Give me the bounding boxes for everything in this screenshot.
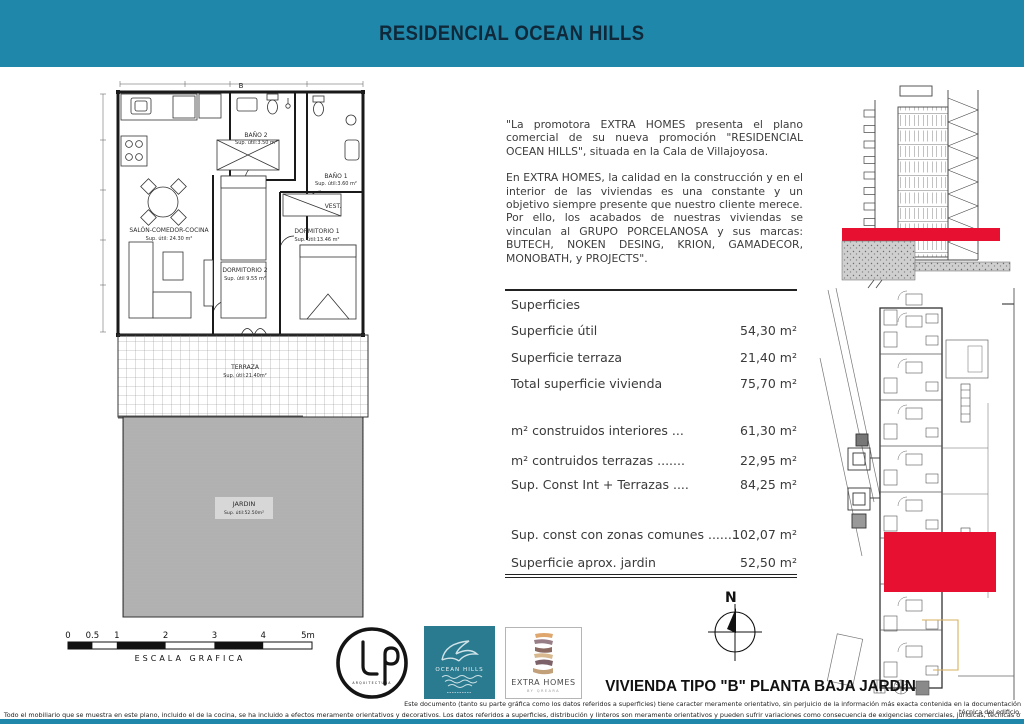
row-value: 54,30 m² [740,323,797,338]
page-title: RESIDENCIAL OCEAN HILLS [379,22,644,46]
extra-homes-name: EXTRA HOMES [511,678,575,687]
row-value: 22,95 m² [740,453,797,468]
row-label: Superficie útil [511,323,597,338]
section-break-mark [868,280,882,288]
row-value: 52,50 m² [740,555,797,570]
scale-tick: 1 [114,631,119,641]
surface-row: m² contruidos terrazas .......22,95 m² [511,453,797,468]
scale-tick: 5m [301,631,315,641]
row-label: Sup. const con zonas comunes ........ [511,527,740,542]
scale-label: ESCALA GRAFICA [135,654,246,663]
extra-homes-logo: EXTRA HOMES BY QREARA [505,627,582,699]
salon-label: SALÓN-COMEDOR-COCINA [129,227,209,234]
surface-row: Sup. const con zonas comunes ........102… [511,527,797,542]
extra-homes-subtext: BY QREARA [527,689,560,693]
jardin: JARDIN Sup. útil:52.50m² [118,417,363,617]
jardin-label: JARDIN [232,500,256,508]
plan-title: VIVIENDA TIPO "B" PLANTA BAJA JARDIN [605,678,881,696]
terraza-area: Sup. útil:21.40m² [223,372,266,379]
row-label: Superficie aprox. jardin [511,555,656,570]
north-label: N [725,590,737,606]
garden-outline [922,620,958,670]
block-label: B [239,82,244,90]
intro-text: "La promotora EXTRA HOMES presenta el pl… [506,118,803,265]
stairs [961,384,970,558]
row-label: Superficie terraza [511,350,622,365]
dorm1-label: DORMITORIO 1 [294,228,339,235]
scale-tick: 2 [163,631,168,641]
compass-needle-icon [727,608,736,633]
row-label: m² contruidos terrazas ....... [511,453,685,468]
surface-row: Sup. Const Int + Terrazas ....84,25 m² [511,477,797,492]
bano1-label: BAÑO 1 [324,173,347,180]
lp-arquitectura-logo: ARQUITECTURA [330,622,414,704]
salon-area: Sup. útil: 24.30 m² [146,235,193,242]
table-top-rule [505,289,797,291]
surface-row: Total superficie vivienda75,70 m² [511,376,797,391]
surface-row: Superficie terraza21,40 m² [511,350,797,365]
terraza: TERRAZA Sup. útil:21.40m² [118,335,368,417]
surface-row: m² construidos interiores ...61,30 m² [511,423,797,438]
bano1-area: Sup. útil:3.60 m² [315,180,357,187]
jardin-area: Sup. útil:52.50m² [224,509,264,516]
floor-plan-drawing: B [45,80,375,625]
ocean-hills-logo: OCEAN HILLS [424,626,495,699]
intro-paragraph-1: "La promotora EXTRA HOMES presenta el pl… [506,118,803,158]
vest-label: VEST. [325,203,342,210]
brochure-page: RESIDENCIAL OCEAN HILLS [0,0,1024,724]
row-value: 84,25 m² [740,477,797,492]
bano2-area: Sup. útil:3.50 m² [235,139,277,146]
dorm1-area: Sup. útil:13.46 m² [294,236,339,243]
row-label: Sup. Const Int + Terrazas .... [511,477,689,492]
site-plan-drawing [818,288,1018,700]
floor-plan-svg: B [45,80,375,625]
scale-bar: 0 0.5 1 2 3 4 5m ESCALA GRAFICA [42,628,320,668]
salon-kitchen-furniture [121,94,221,318]
row-value: 61,30 m² [740,423,797,438]
scale-tick: 3 [212,631,217,641]
ocean-hills-name: OCEAN HILLS [435,667,483,673]
scale-tick: 0 [65,631,70,641]
footer-bar [0,719,1024,724]
lp-monogram-icon [363,642,398,684]
surface-row: Superficie útil54,30 m² [511,323,797,338]
surface-row: Superficie aprox. jardin52,50 m² [511,555,797,570]
row-value: 102,07 m² [732,527,797,542]
elevator-cores [848,434,880,528]
lp-subtext: ARQUITECTURA [352,681,391,685]
compass-rose: N [703,588,767,662]
row-label: m² construidos interiores ... [511,423,684,438]
scale-tick: 0.5 [86,631,100,641]
highlighted-unit [884,532,996,592]
row-value: 75,70 m² [740,376,797,391]
roads [820,288,880,686]
highlighted-floor [842,228,1000,241]
header-bar: RESIDENCIAL OCEAN HILLS [0,0,1024,67]
surfaces-table: Superficies Superficie útil54,30 m² Supe… [505,285,797,587]
dorm2-area: Sup. útil 9.55 m² [224,275,266,282]
intro-paragraph-2: En EXTRA HOMES, la calidad en la constru… [506,171,803,211]
row-value: 21,40 m² [740,350,797,365]
building-section-drawing [840,82,1015,290]
bano2-label: BAÑO 2 [244,132,267,139]
terraza-label: TERRAZA [230,364,260,371]
surfaces-heading: Superficies [511,297,580,312]
dorm2-label: DORMITORIO 2 [222,267,267,274]
scale-tick: 4 [260,631,265,641]
table-bottom-rule [505,574,797,578]
row-label: Total superficie vivienda [511,376,662,391]
intro-paragraph-3: Por ello, los acabados de nuestras vivie… [506,211,803,265]
